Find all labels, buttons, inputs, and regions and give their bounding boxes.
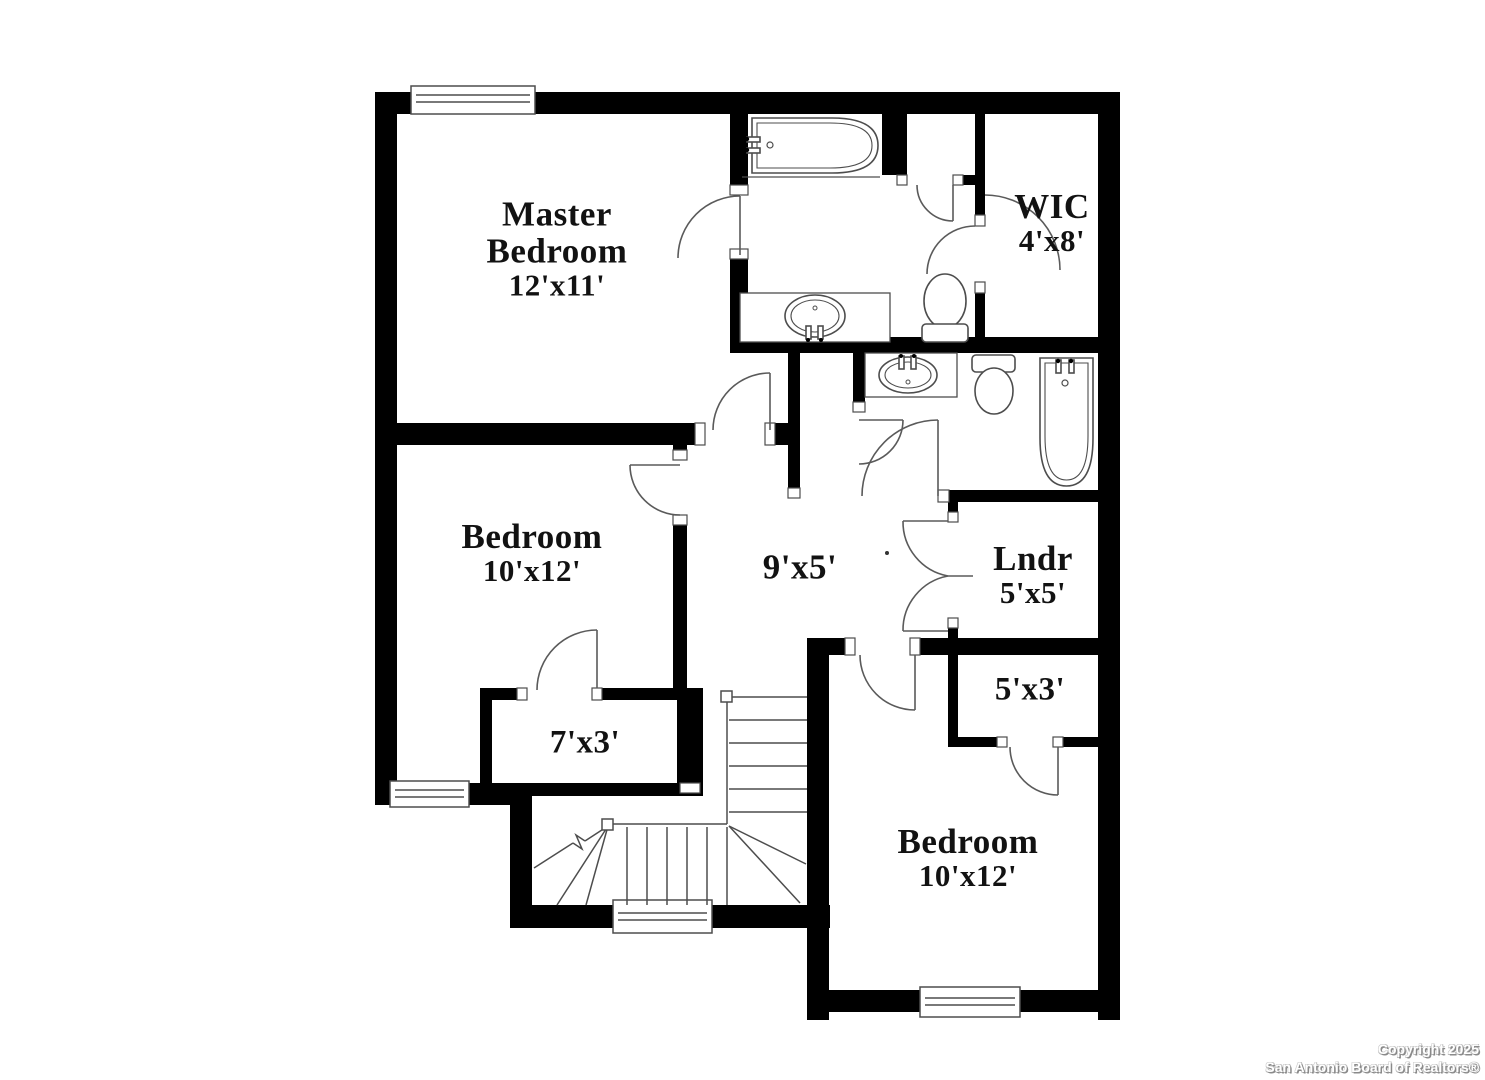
- door-bath2-inner: [859, 420, 903, 464]
- room-dimensions: 12'x11': [487, 270, 628, 303]
- door-bath2: [862, 420, 938, 496]
- room-dimensions: 7'x3': [550, 726, 620, 761]
- wall-bedroom2-top-a: [807, 638, 845, 655]
- room-dimensions: 4'x8': [1014, 225, 1089, 258]
- floorplan-page: Master Bedroom 12'x11' WIC 4'x8' Bedroom…: [0, 0, 1485, 1080]
- toilet-icon: [922, 274, 968, 342]
- wall-closet7x3-left: [480, 688, 492, 783]
- door-bedroomleft: [630, 465, 680, 515]
- wall-wic-left-b: [975, 293, 985, 345]
- sink-icon: [865, 353, 957, 397]
- wall-bedroomleft-right-b: [673, 515, 687, 688]
- floorplan-drawing: [0, 0, 1485, 1080]
- bathtub-icon: [742, 118, 880, 177]
- wall-closet7x3-bottom: [467, 783, 703, 796]
- wall-master-bottom-a: [375, 423, 705, 445]
- room-label-bedroom-left: Bedroom 10'x12': [462, 518, 603, 588]
- stair-treads-upper: [729, 697, 807, 812]
- wall-bath2-bottom: [938, 490, 1120, 502]
- wall-hall-stair: [677, 688, 703, 793]
- room-label-laundry: Lndr 5'x5': [993, 540, 1073, 610]
- toilet-icon: [972, 355, 1015, 414]
- staircase: [534, 691, 807, 905]
- window-bedroomright-bottom: [920, 987, 1020, 1017]
- door-closet5x3: [1010, 747, 1058, 795]
- room-dimensions: 5'x3': [995, 673, 1065, 708]
- room-dimensions: 5'x5': [993, 577, 1073, 610]
- room-name: WIC: [1014, 188, 1089, 225]
- wall-bedroom2-top-b: [920, 638, 1098, 655]
- wall-wic-left-a: [975, 114, 985, 215]
- window-master-top: [411, 86, 535, 114]
- room-dimensions: 10'x12': [898, 860, 1039, 893]
- wall-exterior-right: [1098, 92, 1120, 1020]
- room-label-closet-7x3: 7'x3': [550, 726, 620, 761]
- wall-tub-niche: [882, 114, 907, 175]
- stair-railing: [602, 691, 732, 830]
- room-dimensions: 10'x12': [462, 555, 603, 588]
- room-dimensions: 9'x5': [763, 548, 837, 585]
- door-laundry-double: [903, 521, 973, 631]
- room-name: Bedroom: [487, 233, 628, 270]
- room-label-wic: WIC 4'x8': [1014, 188, 1089, 258]
- window-stairs-bottom: [613, 900, 712, 933]
- room-name: Master: [487, 195, 628, 232]
- copyright-line: Copyright 2025: [1265, 1040, 1479, 1058]
- stair-treads-lower: [627, 827, 727, 905]
- sink-icon: [740, 293, 890, 342]
- plan-dot-mark: [885, 551, 889, 555]
- door-niche: [917, 185, 953, 221]
- room-name: Bedroom: [898, 823, 1039, 860]
- door-master: [713, 373, 770, 430]
- room-name: Bedroom: [462, 518, 603, 555]
- stair-winders: [534, 826, 806, 905]
- wall-nook-left: [788, 353, 800, 498]
- copyright-watermark: Copyright 2025 San Antonio Board of Real…: [1265, 1040, 1479, 1076]
- wall-closet5x3-bottom-a: [948, 737, 997, 747]
- wall-bedroomright-left: [807, 638, 829, 1020]
- room-label-bedroom-right: Bedroom 10'x12': [898, 823, 1039, 893]
- room-label-hallway: 9'x5': [763, 548, 837, 585]
- door-bedroomright: [860, 655, 915, 710]
- wall-closet5x3-left: [948, 655, 958, 747]
- wall-exterior-left: [375, 92, 397, 805]
- attribution-line: San Antonio Board of Realtors®: [1265, 1058, 1479, 1076]
- room-label-closet-5x3: 5'x3': [995, 673, 1065, 708]
- bathtub-icon: [1040, 358, 1093, 486]
- door-closet7x3: [537, 630, 597, 690]
- wall-closet5x3-bottom-b: [1063, 737, 1098, 747]
- room-name: Lndr: [993, 540, 1073, 577]
- window-bedroomleft-bottom: [390, 781, 469, 807]
- room-label-master-bedroom: Master Bedroom 12'x11': [487, 195, 628, 302]
